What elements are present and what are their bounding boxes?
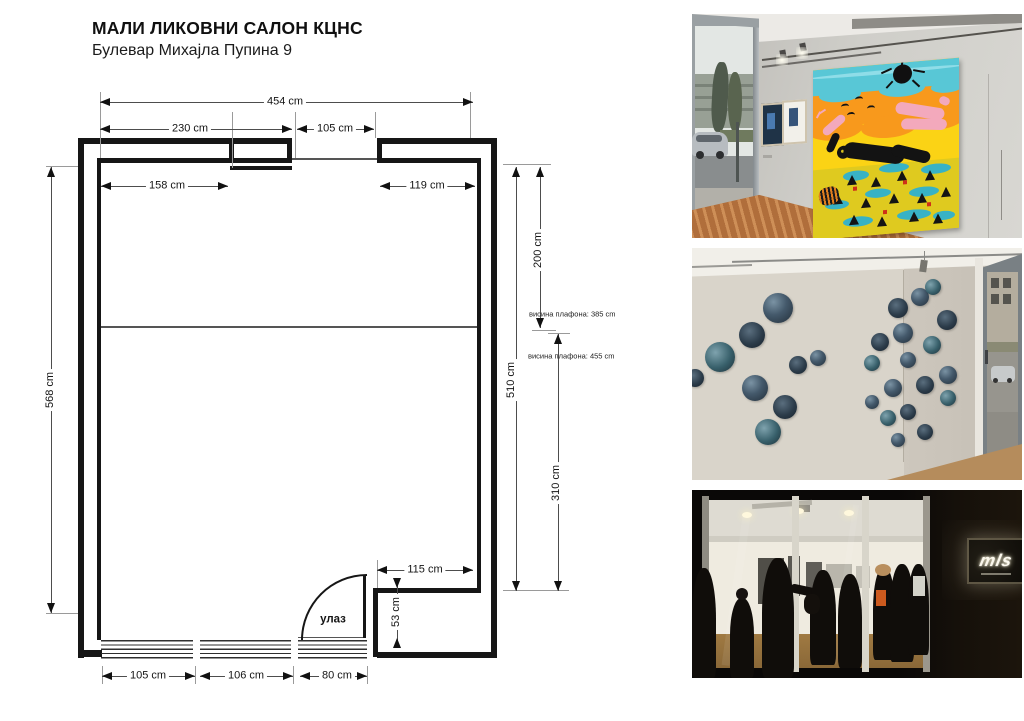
arrow <box>297 125 307 133</box>
red-accent <box>903 180 907 184</box>
artwork-circle <box>864 355 880 371</box>
road <box>987 352 1018 412</box>
photo-gallery-interior-painting <box>692 14 1022 238</box>
person-hair <box>875 564 891 576</box>
artwork-circle <box>692 369 704 387</box>
artwork-circle <box>925 279 941 295</box>
arrow <box>393 578 401 588</box>
extension-line <box>532 330 556 331</box>
dim-top-left-segment: 230 cm <box>169 123 211 136</box>
greenery <box>987 342 1018 352</box>
door-jamb <box>975 258 983 468</box>
arrow <box>218 182 228 190</box>
boat-triangle <box>933 213 943 224</box>
artwork-circle <box>773 395 797 419</box>
door-swing-arc <box>301 574 367 640</box>
arrow <box>357 672 367 680</box>
ceiling-height-note-upper: висина плафона: 385 cm <box>529 310 616 319</box>
framed-artwork <box>761 102 784 147</box>
sliding-panel <box>230 166 292 170</box>
artwork-circle <box>916 376 934 394</box>
artwork-circle <box>939 366 957 384</box>
arrow <box>463 566 473 574</box>
artwork-circle <box>900 352 916 368</box>
artwork-circle <box>923 336 941 354</box>
arrow <box>463 98 473 106</box>
spotlight-wire <box>924 251 925 261</box>
framed-artwork <box>782 99 807 145</box>
wall-corner-line <box>988 74 989 238</box>
artwork-circle <box>900 404 916 420</box>
arrow <box>101 182 111 190</box>
mullion <box>862 496 869 672</box>
artwork-circle <box>880 410 896 426</box>
arrow <box>185 672 195 680</box>
extension-line <box>367 666 368 684</box>
artwork-circle <box>810 350 826 366</box>
photo-gallery-circles <box>692 248 1022 480</box>
dim-right-upper-zone: 200 cm <box>531 229 545 271</box>
wall-left <box>78 138 84 658</box>
arrow <box>465 182 475 190</box>
building-window <box>991 278 999 288</box>
dim-bottom-middle: 106 cm <box>225 670 267 683</box>
arrow <box>554 581 562 591</box>
spotlight-glow <box>796 47 808 59</box>
red-accent <box>883 210 887 214</box>
bag <box>804 594 820 614</box>
arrow <box>283 672 293 680</box>
car-wheel <box>1007 378 1012 383</box>
extension-line <box>295 112 296 158</box>
dim-right-side-height: 510 cm <box>504 359 518 401</box>
boat-triangle <box>849 214 859 225</box>
entrance-label: улаз <box>317 614 349 627</box>
boat-triangle <box>861 197 871 208</box>
photo-night-entrance: mls <box>692 490 1022 678</box>
arrow <box>47 167 55 177</box>
transom-ceiling <box>706 500 926 536</box>
tree <box>728 72 742 132</box>
arrow <box>100 125 110 133</box>
dim-bottom-left: 105 cm <box>127 670 169 683</box>
storefront-glazing <box>298 640 367 659</box>
arrow <box>364 125 374 133</box>
dim-niche-depth: 53 cm <box>389 594 403 630</box>
arrow <box>393 638 401 648</box>
extension-line <box>375 112 376 138</box>
artwork-circle <box>763 293 793 323</box>
wall-label <box>763 155 772 158</box>
pink-leg <box>901 118 948 130</box>
wall-step-horizontal <box>373 588 481 593</box>
street-window <box>692 22 758 212</box>
building-window <box>1003 294 1011 304</box>
dim-niche-width: 115 cm <box>404 564 445 577</box>
car-wheel <box>716 151 724 159</box>
red-accent <box>853 187 857 191</box>
artwork-motif <box>789 108 798 127</box>
extension-line <box>232 112 233 168</box>
boat-triangle <box>847 175 857 186</box>
large-painting <box>813 58 959 238</box>
dim-right-lower-zone: 310 cm <box>549 462 563 504</box>
arrow <box>554 334 562 344</box>
car-wheel <box>696 151 704 159</box>
wall-bottom-right <box>377 652 497 658</box>
artwork-circle <box>937 310 957 330</box>
wall-inner-top-right <box>377 158 481 163</box>
car-window <box>696 135 722 142</box>
wall-connector-c <box>377 138 382 163</box>
arrow <box>512 581 520 591</box>
building-window <box>991 294 999 304</box>
artwork-circle <box>739 322 765 348</box>
boat-triangle <box>925 170 935 181</box>
storefront-glazing <box>101 640 193 659</box>
artwork-circle <box>891 433 905 447</box>
arrow <box>380 182 390 190</box>
artwork-circle <box>884 379 902 397</box>
person-silhouette <box>730 598 754 678</box>
arrow <box>100 98 110 106</box>
extension-line <box>503 164 551 165</box>
boat-triangle <box>909 211 919 222</box>
artwork-circle <box>871 333 889 351</box>
artwork-circle <box>755 419 781 445</box>
dim-left-side-height: 568 cm <box>43 369 57 411</box>
red-accent <box>927 202 931 206</box>
artwork-circle <box>893 323 913 343</box>
wall-top-right <box>377 138 497 144</box>
car-wheel <box>993 378 998 383</box>
boat-triangle <box>871 176 881 187</box>
wall-inner-left <box>97 158 101 640</box>
dim-upper-right-wall: 119 cm <box>406 180 447 193</box>
artwork-motif <box>767 113 775 130</box>
frame-bar <box>702 536 930 542</box>
ceiling-height-note-lower: висина плафона: 455 cm <box>528 352 615 361</box>
wall-top-left <box>78 138 292 144</box>
wall-right <box>491 138 497 658</box>
boat-triangle <box>917 192 927 203</box>
storefront-glazing <box>200 640 291 659</box>
extension-line <box>377 560 378 588</box>
extension-line <box>293 666 294 684</box>
boat-triangle <box>877 216 887 227</box>
person-silhouette <box>762 558 794 678</box>
artwork-circle <box>888 298 908 318</box>
hanging-wire <box>1001 150 1002 220</box>
dim-top-total: 454 cm <box>264 96 306 109</box>
page-title: МАЛИ ЛИКОВНИ САЛОН КЦНС <box>92 18 363 39</box>
person-silhouette <box>810 570 836 665</box>
door-handle <box>985 350 988 364</box>
wall-step-vertical <box>373 588 378 657</box>
road <box>695 156 753 188</box>
wall-inner-right <box>477 158 481 593</box>
boat-triangle <box>889 193 899 204</box>
artwork-circle <box>865 395 879 409</box>
light-spill <box>942 520 1022 600</box>
extension-line <box>46 613 78 614</box>
artwork-circle <box>940 390 956 406</box>
room-divider-line <box>101 326 477 328</box>
open-glass-door <box>983 254 1022 476</box>
white-shirt <box>913 576 925 596</box>
arrow <box>200 672 210 680</box>
arrow <box>282 125 292 133</box>
arrow <box>512 167 520 177</box>
window-mullion <box>753 20 759 214</box>
dim-top-opening: 105 cm <box>314 123 356 136</box>
artwork-circle <box>917 424 933 440</box>
arrow <box>300 672 310 680</box>
wall-bottom-left-cap <box>78 650 102 657</box>
street-pole <box>736 122 739 182</box>
artwork-circle <box>742 375 768 401</box>
arrow <box>47 603 55 613</box>
artwork-circle <box>789 356 807 374</box>
person-silhouette <box>692 568 716 678</box>
wall-inner-top-left <box>97 158 292 163</box>
arrow <box>102 672 112 680</box>
building-window <box>1003 278 1011 288</box>
page-address: Булевар Михајла Пупина 9 <box>92 42 292 60</box>
person-silhouette <box>838 574 862 668</box>
spotlight-glow <box>776 54 788 66</box>
artwork-circle <box>705 342 735 372</box>
opening-line <box>292 158 377 160</box>
arrow <box>536 318 544 328</box>
arrow <box>536 167 544 177</box>
extension-line <box>195 666 196 684</box>
person-head <box>736 588 748 600</box>
dim-upper-left-wall: 158 cm <box>146 180 188 193</box>
dim-bottom-entrance: 80 cm <box>319 670 355 683</box>
boat-triangle <box>941 186 951 197</box>
arrow <box>377 566 387 574</box>
orange-garment <box>876 590 886 606</box>
